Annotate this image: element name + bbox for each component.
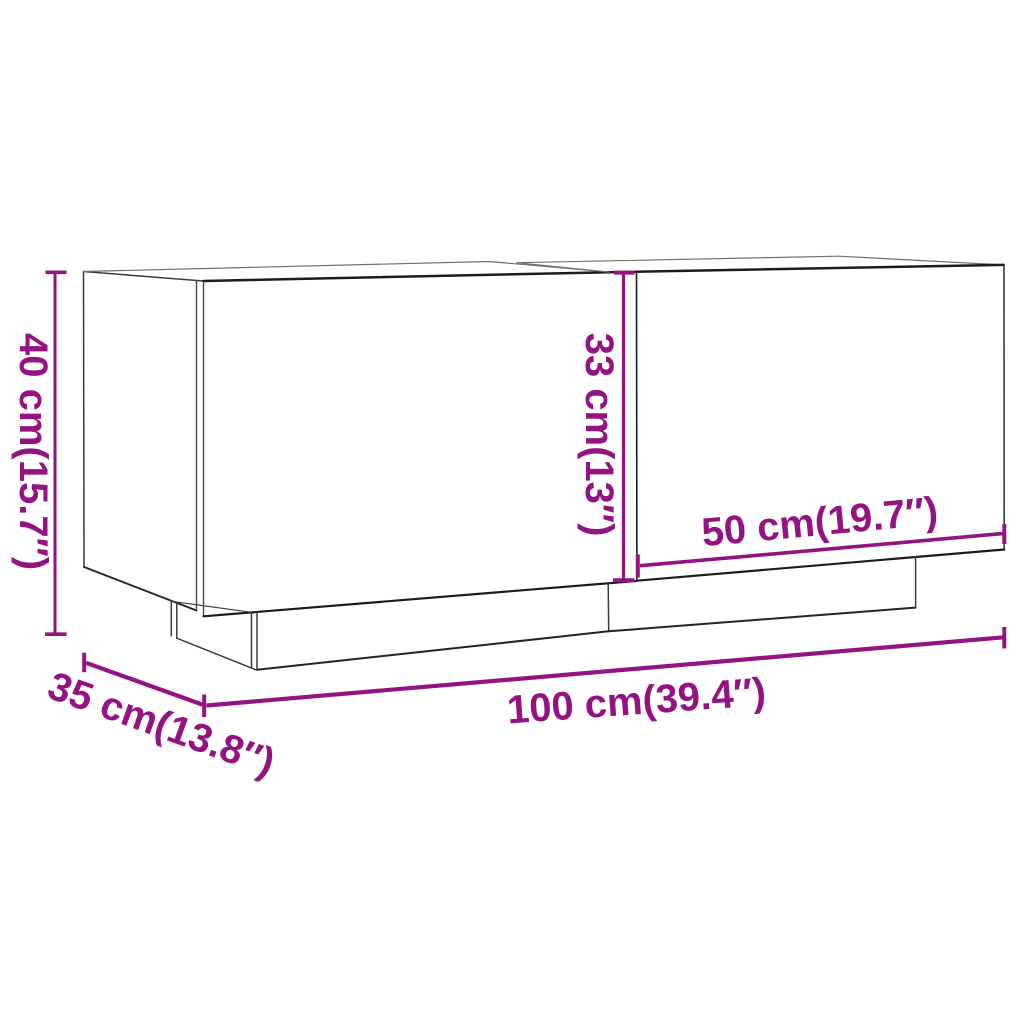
svg-text:40 cm(15.7″): 40 cm(15.7″) [11, 333, 55, 570]
svg-text:33 cm(13″): 33 cm(13″) [577, 333, 621, 537]
